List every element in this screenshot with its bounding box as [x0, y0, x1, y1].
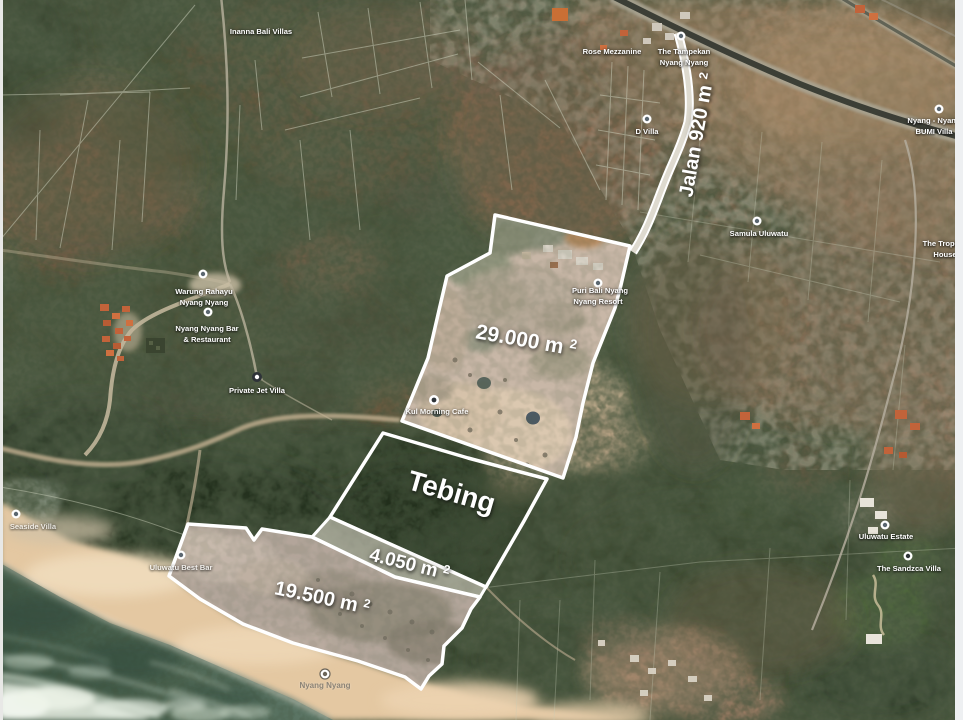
svg-text:Samula Uluwatu: Samula Uluwatu [730, 229, 789, 238]
svg-text:Nyang Nyang Bar: Nyang Nyang Bar [175, 324, 238, 333]
svg-text:Rose Mezzanine: Rose Mezzanine [583, 47, 642, 56]
svg-text:& Restaurant: & Restaurant [183, 335, 231, 344]
svg-text:Inanna Bali Villas: Inanna Bali Villas [230, 27, 292, 36]
svg-text:Nyang Resort: Nyang Resort [573, 297, 623, 306]
svg-text:Nyang - Nyang: Nyang - Nyang [907, 116, 961, 125]
svg-text:The Tampekan: The Tampekan [658, 47, 711, 56]
svg-text:Uluwatu Estate: Uluwatu Estate [859, 532, 913, 541]
svg-text:D Villa: D Villa [635, 127, 659, 136]
svg-text:The Sandzca Villa: The Sandzca Villa [877, 564, 942, 573]
svg-text:Nyang Nyang: Nyang Nyang [180, 298, 229, 307]
svg-text:Puri Bali Nyang: Puri Bali Nyang [572, 286, 628, 295]
svg-text:Uluwatu Best Bar: Uluwatu Best Bar [150, 563, 213, 572]
svg-text:Nyang Nyang: Nyang Nyang [660, 58, 709, 67]
svg-text:BUMI Villa: BUMI Villa [916, 127, 954, 136]
svg-text:Nyang Nyang: Nyang Nyang [299, 681, 350, 690]
svg-text:Private Jet Villa: Private Jet Villa [229, 386, 286, 395]
svg-text:Kul Morning Cafe: Kul Morning Cafe [406, 407, 469, 416]
svg-text:Warung Rahayu: Warung Rahayu [175, 287, 233, 296]
svg-text:Seaside Villa: Seaside Villa [10, 522, 57, 531]
svg-text:House: House [933, 250, 956, 259]
